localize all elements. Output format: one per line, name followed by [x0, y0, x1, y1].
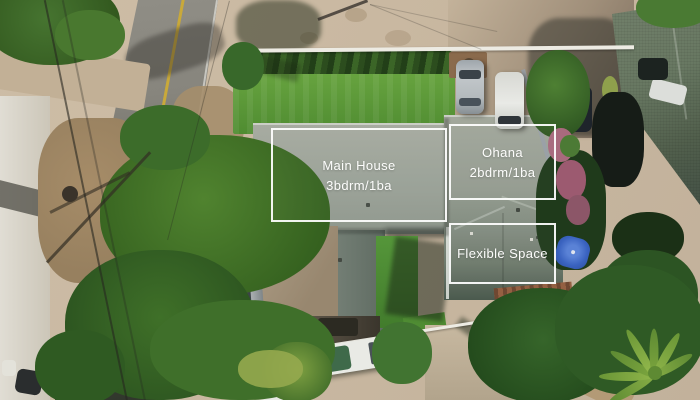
- main-house-title: Main House: [322, 158, 395, 173]
- aerial-property-photo: Main House 3bdrm/1ba Ohana 2bdrm/1ba Fle…: [0, 0, 700, 400]
- car-dark-far: [638, 58, 668, 80]
- windshield: [459, 70, 481, 79]
- flower-greenery: [560, 135, 580, 157]
- white-object: [2, 360, 16, 376]
- pavement-stain: [345, 8, 367, 22]
- ohana-title: Ohana: [482, 145, 523, 160]
- bush: [372, 322, 432, 384]
- pavement-stain: [385, 30, 411, 46]
- tree-canopy: [120, 105, 210, 170]
- building-shadow: [385, 236, 453, 321]
- roof-vent: [338, 258, 342, 262]
- foliage-yellow: [238, 350, 303, 388]
- tree-canopy: [35, 330, 125, 400]
- palm-over-hedge: [222, 42, 264, 90]
- ohana-subtitle: 2bdrm/1ba: [470, 165, 536, 180]
- palm-crown: [648, 366, 662, 380]
- utility-pole-top: [62, 186, 78, 202]
- umbrella-pole-tip: [571, 250, 576, 255]
- car-silver-suv: [456, 60, 484, 114]
- van-white: [495, 72, 524, 129]
- label-box-ohana: Ohana 2bdrm/1ba: [449, 124, 556, 200]
- label-box-flexible-space: Flexible Space: [449, 223, 556, 284]
- flowers-pink: [566, 195, 590, 225]
- roof-vent: [516, 208, 520, 212]
- flexible-space-title: Flexible Space: [457, 246, 548, 261]
- label-box-main-house: Main House 3bdrm/1ba: [271, 128, 447, 222]
- rear-window: [459, 98, 481, 106]
- flowers-pink: [556, 160, 586, 200]
- main-house-subtitle: 3bdrm/1ba: [326, 178, 392, 193]
- palm-tree: [598, 312, 700, 400]
